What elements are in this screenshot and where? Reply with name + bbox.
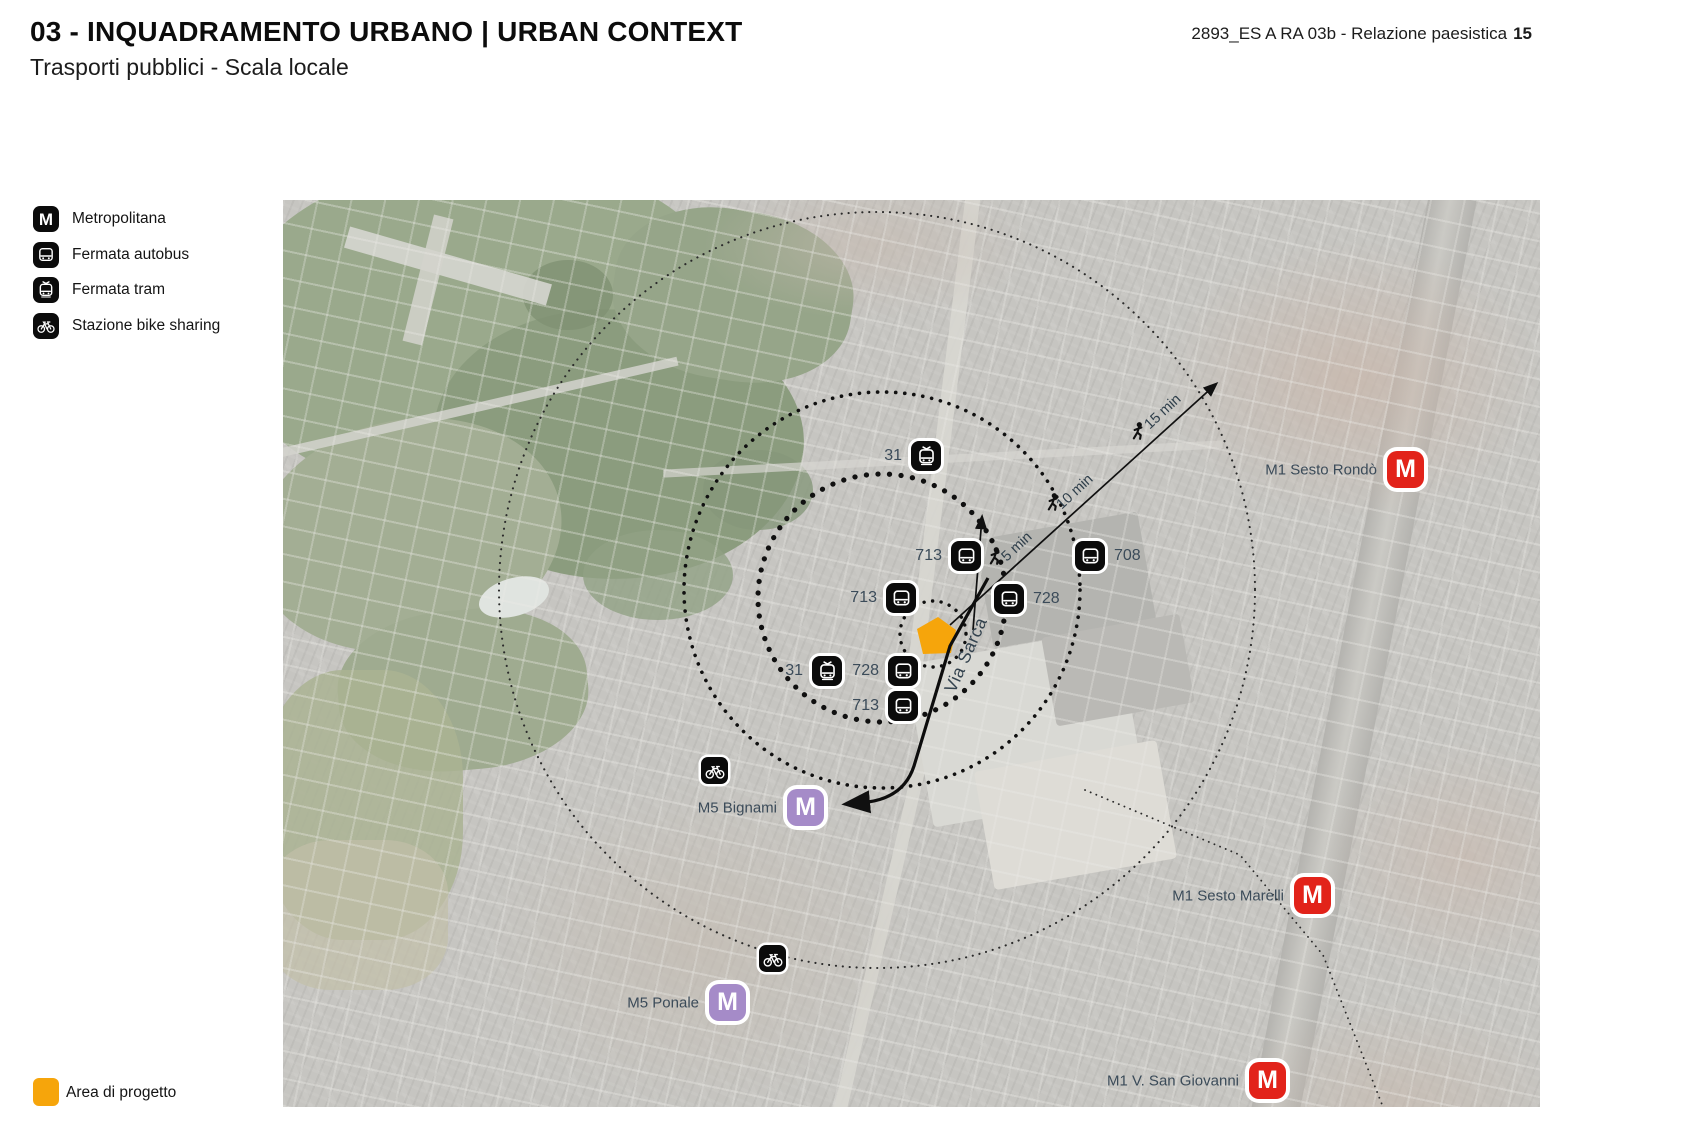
stop-label: 713 xyxy=(852,697,879,715)
metro-station-m1-v-san-giovanni: M M1 V. San Giovanni xyxy=(1249,1062,1286,1099)
bus-icon xyxy=(998,588,1021,611)
bus-icon xyxy=(955,545,978,568)
bike-icon xyxy=(704,760,726,782)
page-subtitle: Trasporti pubblici - Scala locale xyxy=(30,54,349,81)
walk-direction-arrow-n xyxy=(973,517,982,630)
bike-station-marker xyxy=(759,945,786,972)
stop-label: 728 xyxy=(852,662,879,680)
station-label: M1 Sesto Marelli xyxy=(1172,887,1284,904)
tram-stop-marker: 31 xyxy=(812,656,842,686)
station-label: M5 Bignami xyxy=(698,799,777,816)
doc-code: 2893_ES A RA 03b - Relazione paesistica xyxy=(1191,24,1507,43)
bus-icon xyxy=(892,695,915,718)
page-number: 15 xyxy=(1513,24,1532,43)
walk-direction-arrow-ne xyxy=(950,384,1216,625)
metro-station-m1-sesto-rondo: M M1 Sesto Rondò xyxy=(1387,451,1424,488)
stop-label: 728 xyxy=(1033,590,1060,608)
legend-item-label: Metropolitana xyxy=(72,210,166,228)
bus-stop-marker: 713 xyxy=(886,583,916,613)
aerial-map: 5 min 10 min 15 min Via Sarca 31 713 713… xyxy=(283,200,1540,1107)
legend-item-label: Stazione bike sharing xyxy=(72,317,220,335)
bus-stop-marker: 728 xyxy=(888,656,918,686)
bus-stop-marker: 713 xyxy=(951,541,981,571)
tram-icon xyxy=(915,445,938,468)
legend-item-label: Fermata autobus xyxy=(72,246,189,264)
walking-icon-15min xyxy=(1134,422,1142,439)
bus-icon xyxy=(1079,545,1102,568)
metro-icon: M xyxy=(1257,1068,1278,1093)
legend-item-bike: Stazione bike sharing xyxy=(33,313,220,339)
bus-stop-marker: 728 xyxy=(994,584,1024,614)
metro-icon: M xyxy=(795,795,816,820)
document-page: 03 - INQUADRAMENTO URBANO | URBAN CONTEX… xyxy=(0,0,1698,1125)
page-title: 03 - INQUADRAMENTO URBANO | URBAN CONTEX… xyxy=(30,16,742,48)
metro-icon: M xyxy=(1395,457,1416,482)
legend-item-bus: Fermata autobus xyxy=(33,242,189,268)
walk-ring-5min xyxy=(758,474,1006,722)
map-annotations xyxy=(283,200,1540,1107)
bike-station-marker xyxy=(701,757,728,784)
station-label: M5 Ponale xyxy=(627,994,699,1011)
metro-station-m5-ponale: M M5 Ponale xyxy=(709,984,746,1021)
stop-label: 31 xyxy=(785,662,803,680)
boundary-dotted-line xyxy=(1085,790,1383,1107)
walking-icon-5min xyxy=(991,547,999,564)
bus-stop-marker: 708 xyxy=(1075,541,1105,571)
legend-item-metro: M Metropolitana xyxy=(33,206,166,232)
station-label: M1 Sesto Rondò xyxy=(1265,461,1377,478)
bus-stop-marker: 713 xyxy=(888,691,918,721)
metro-icon: M xyxy=(1302,883,1323,908)
stop-label: 713 xyxy=(850,589,877,607)
tram-icon xyxy=(33,277,59,303)
legend-item-label: Fermata tram xyxy=(72,281,165,299)
stop-label: 708 xyxy=(1114,547,1141,565)
metro-icon: M xyxy=(717,990,738,1015)
bus-icon xyxy=(892,660,915,683)
station-label: M1 V. San Giovanni xyxy=(1107,1072,1239,1089)
project-area-label: Area di progetto xyxy=(66,1084,176,1102)
metro-icon: M xyxy=(33,206,59,232)
project-area-swatch xyxy=(33,1078,59,1106)
legend-item-tram: Fermata tram xyxy=(33,277,165,303)
bus-icon xyxy=(890,587,913,610)
document-reference: 2893_ES A RA 03b - Relazione paesistica1… xyxy=(1191,24,1532,44)
stop-label: 713 xyxy=(915,547,942,565)
tram-icon xyxy=(816,660,839,683)
metro-station-m1-sesto-marelli: M M1 Sesto Marelli xyxy=(1294,877,1331,914)
metro-station-m5-bignami: M M5 Bignami xyxy=(787,789,824,826)
bike-icon xyxy=(33,313,59,339)
tram-stop-marker: 31 xyxy=(911,441,941,471)
stop-label: 31 xyxy=(884,447,902,465)
bike-icon xyxy=(762,948,784,970)
bus-icon xyxy=(33,242,59,268)
